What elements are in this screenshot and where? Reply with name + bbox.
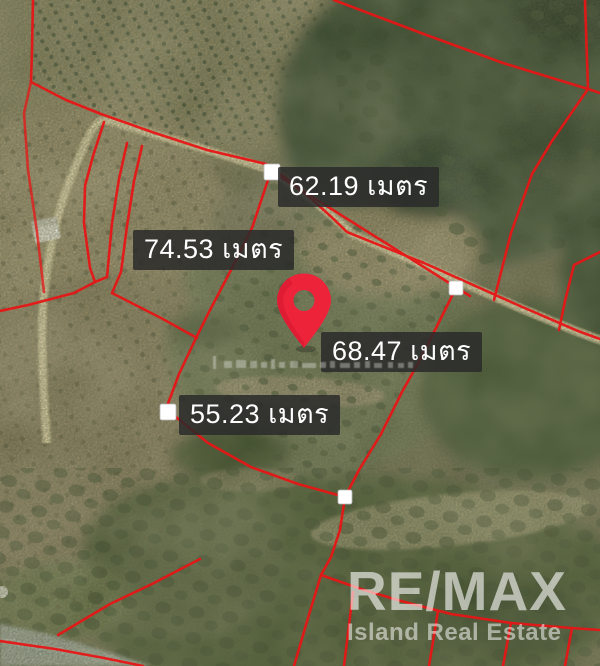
measurement-label-north: 62.19 เมตร — [278, 167, 439, 207]
remax-tagline-text: Island Real Estate — [347, 620, 567, 645]
measurement-label-south: 55.23 เมตร — [179, 395, 340, 435]
satellite-map-view[interactable]: 62.19 เมตร 74.53 เมตร 68.47 เมตร 55.23 เ… — [0, 0, 600, 666]
measurement-label-east: 68.47 เมตร — [321, 332, 482, 372]
measurement-label-west: 74.53 เมตร — [133, 230, 294, 270]
vertex-marker-south[interactable] — [338, 490, 352, 504]
remax-logo-text: RE/MAX — [347, 564, 567, 619]
remax-watermark: RE/MAX Island Real Estate — [347, 564, 567, 645]
vertex-marker-west[interactable] — [160, 404, 176, 420]
vertex-marker-east[interactable] — [449, 281, 463, 295]
